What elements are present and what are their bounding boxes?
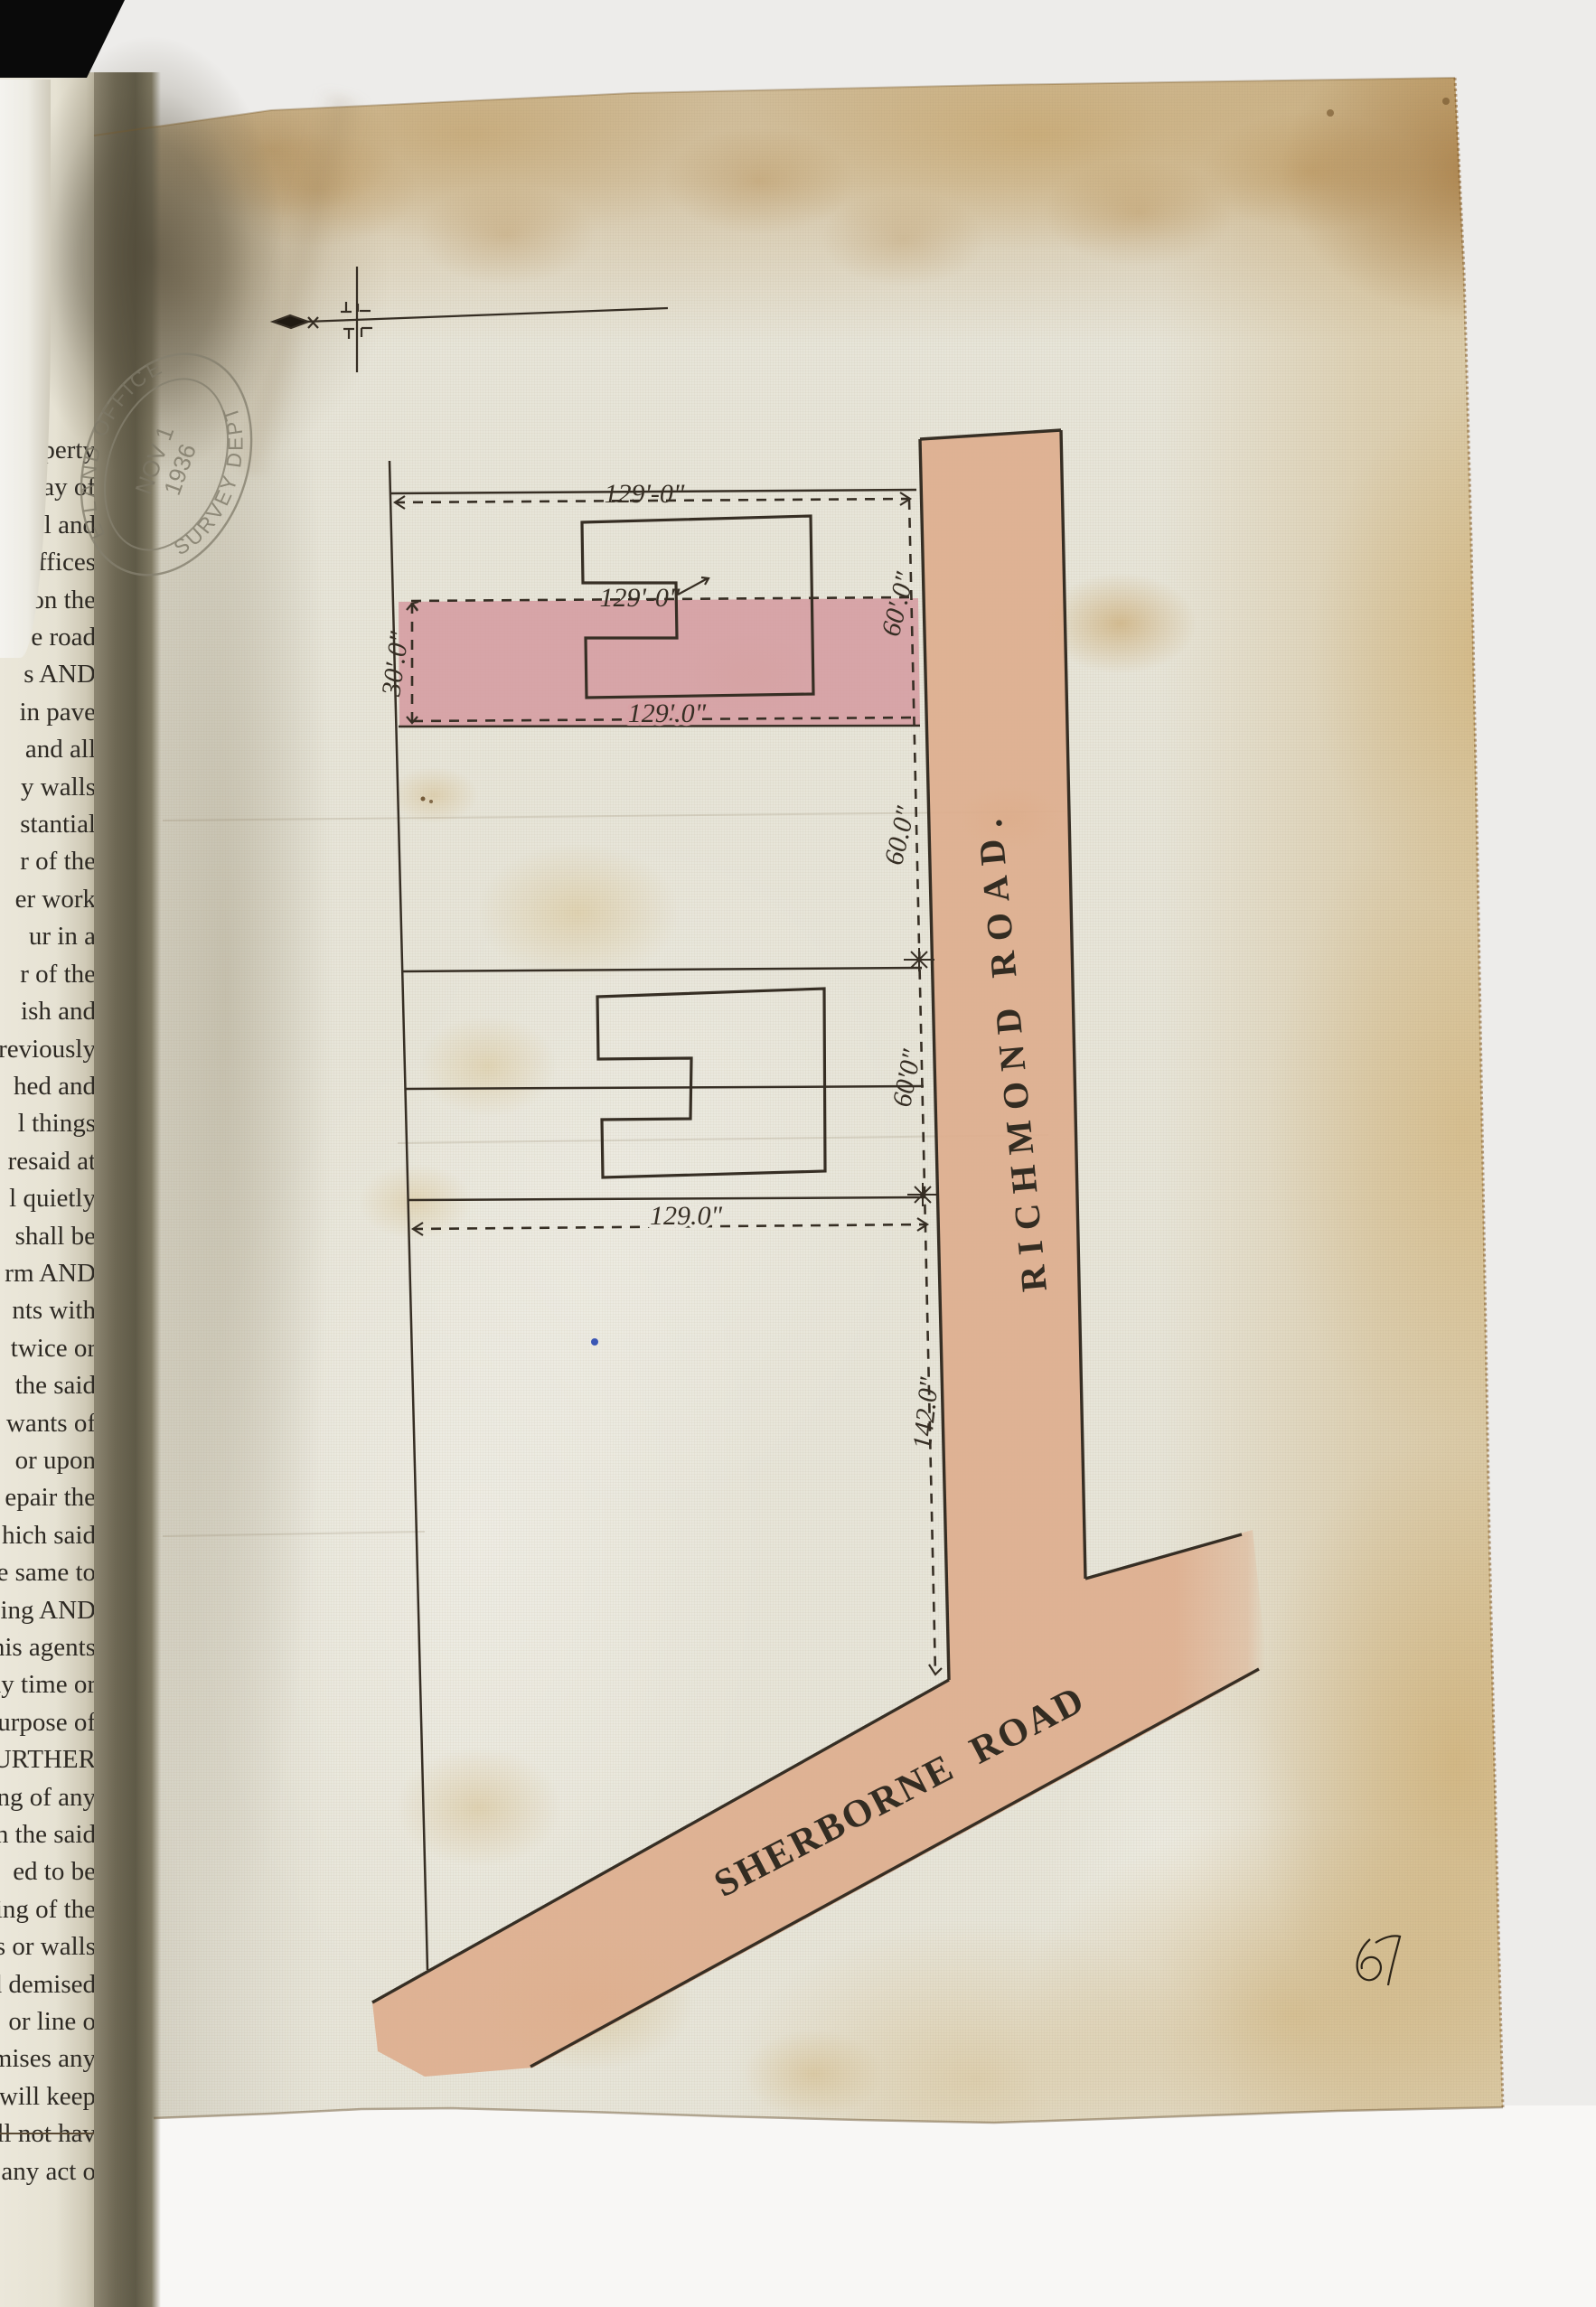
svg-text:129'-0": 129'-0" xyxy=(599,583,680,613)
svg-text:60'0": 60'0" xyxy=(887,1046,927,1110)
svg-text:129'-0": 129'-0" xyxy=(604,479,684,509)
svg-text:129.0": 129.0" xyxy=(650,1201,723,1231)
svg-text:142.0": 142.0" xyxy=(907,1375,944,1451)
svg-text:129'.0": 129'.0" xyxy=(628,699,707,728)
